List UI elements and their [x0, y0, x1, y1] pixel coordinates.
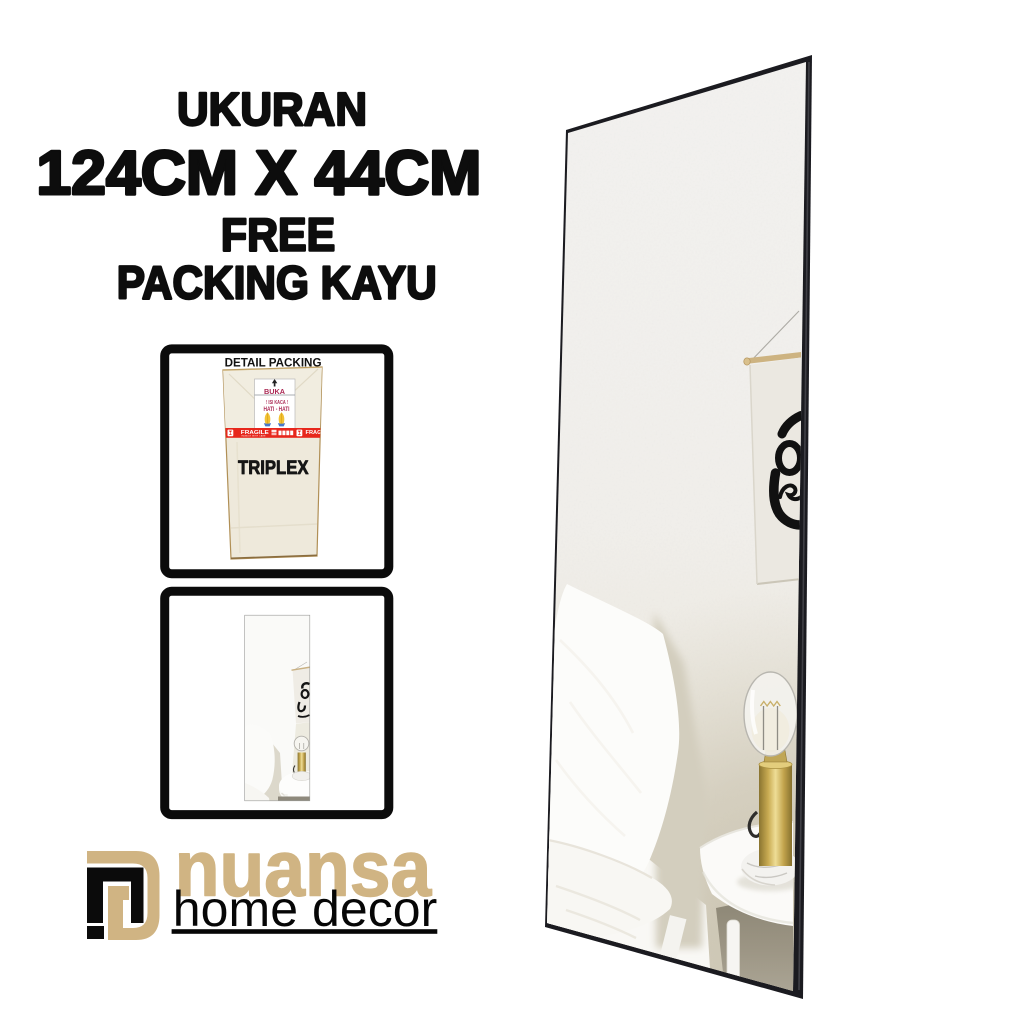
svg-text:home decor: home decor: [173, 881, 438, 937]
svg-text:BUKA: BUKA: [264, 387, 286, 396]
svg-text:UKURAN: UKURAN: [177, 83, 367, 135]
svg-text:FREE: FREE: [221, 208, 335, 260]
svg-text:PACKING KAYU: PACKING KAYU: [117, 257, 437, 309]
svg-text:124CM X 44CM: 124CM X 44CM: [36, 139, 481, 208]
svg-text:TRIPLEX: TRIPLEX: [238, 458, 309, 479]
svg-text:FRAG: FRAG: [306, 430, 322, 436]
svg-text:HANDLE WITH CARE: HANDLE WITH CARE: [242, 435, 267, 438]
svg-text:! ISI KACA !: ! ISI KACA !: [266, 400, 288, 406]
svg-text:HATI - HATI: HATI - HATI: [264, 407, 290, 413]
